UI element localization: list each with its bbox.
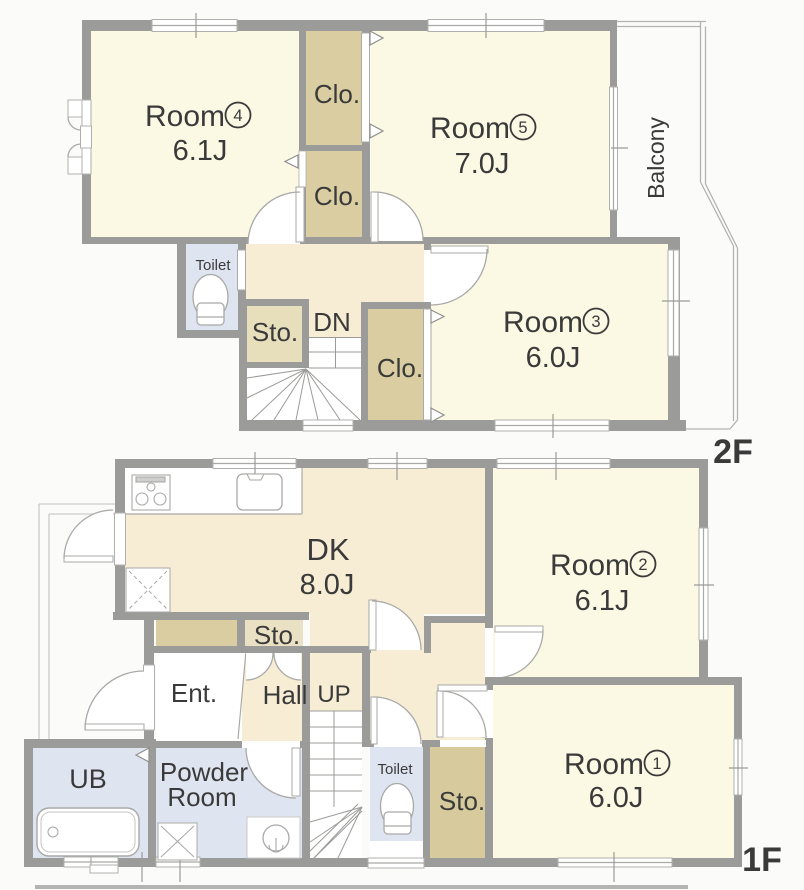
svg-text:DK: DK bbox=[306, 532, 349, 567]
svg-text:Balcony: Balcony bbox=[643, 117, 669, 199]
svg-text:6.1J: 6.1J bbox=[575, 585, 630, 617]
svg-text:Clo.: Clo. bbox=[377, 353, 423, 383]
svg-text:Room: Room bbox=[550, 549, 630, 582]
svg-text:6.0J: 6.0J bbox=[526, 342, 581, 374]
svg-text:UP: UP bbox=[317, 681, 350, 708]
svg-text:Sto.: Sto. bbox=[439, 786, 485, 816]
svg-text:Room: Room bbox=[503, 306, 583, 339]
svg-text:8.0J: 8.0J bbox=[300, 569, 355, 601]
svg-text:Room: Room bbox=[167, 782, 236, 812]
svg-text:1: 1 bbox=[652, 755, 661, 773]
svg-text:5: 5 bbox=[518, 119, 527, 137]
svg-text:6.1J: 6.1J bbox=[173, 135, 228, 167]
svg-text:7.0J: 7.0J bbox=[455, 148, 510, 180]
svg-text:Clo.: Clo. bbox=[314, 79, 360, 109]
svg-text:Room: Room bbox=[145, 100, 225, 133]
svg-text:Sto.: Sto. bbox=[254, 620, 300, 650]
svg-text:2: 2 bbox=[638, 556, 647, 574]
svg-text:Sto.: Sto. bbox=[252, 317, 298, 347]
svg-text:Room: Room bbox=[430, 112, 510, 145]
svg-text:Ent.: Ent. bbox=[171, 678, 217, 708]
svg-text:Toilet: Toilet bbox=[195, 257, 231, 274]
svg-text:Toilet: Toilet bbox=[377, 761, 413, 778]
svg-text:Hall: Hall bbox=[263, 680, 308, 710]
svg-text:Clo.: Clo. bbox=[314, 181, 360, 211]
svg-text:2F: 2F bbox=[713, 433, 753, 471]
svg-text:4: 4 bbox=[233, 107, 242, 125]
svg-text:UB: UB bbox=[69, 764, 107, 794]
svg-text:1F: 1F bbox=[742, 841, 782, 879]
svg-text:Room: Room bbox=[564, 748, 644, 781]
svg-text:3: 3 bbox=[591, 313, 600, 331]
svg-text:DN: DN bbox=[313, 307, 351, 337]
svg-text:6.0J: 6.0J bbox=[589, 782, 644, 814]
